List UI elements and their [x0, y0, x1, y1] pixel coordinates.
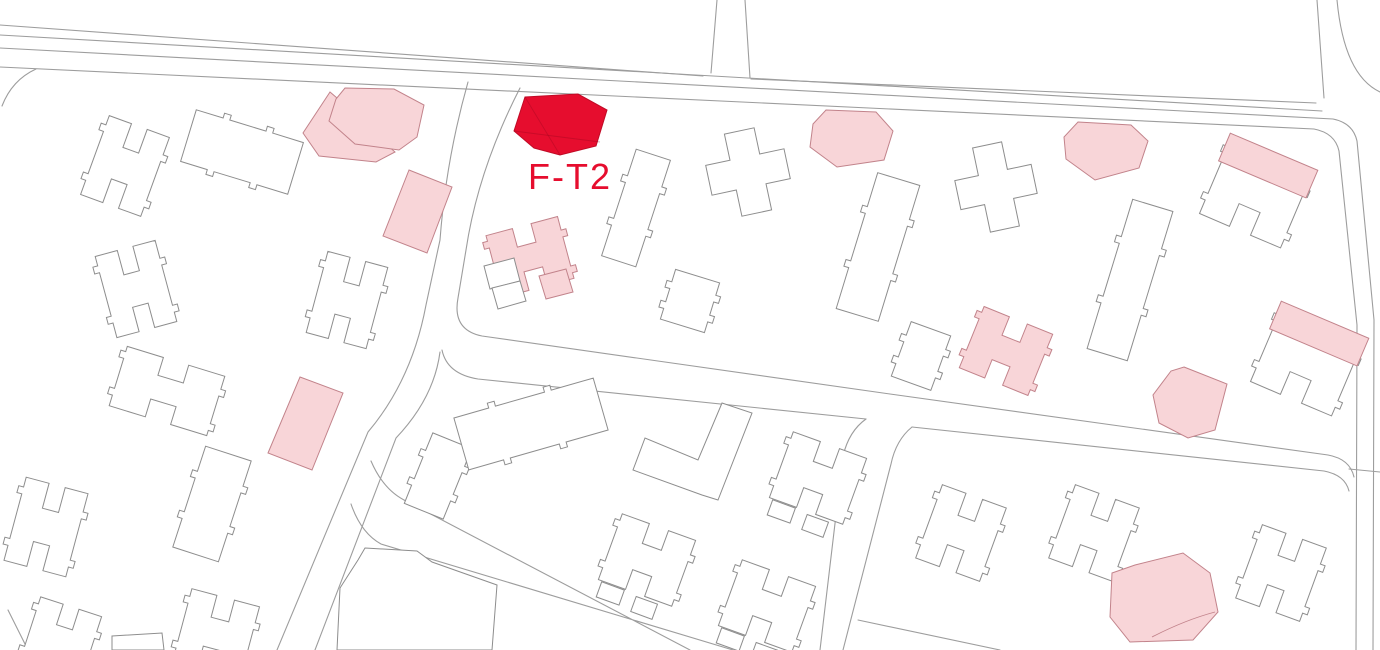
south-branch-road — [820, 419, 912, 650]
buildings-layer — [3, 88, 1369, 650]
building-w17 — [836, 173, 920, 322]
building-p12 — [959, 307, 1053, 396]
building-w23 — [916, 485, 1007, 582]
building-p5 — [810, 110, 893, 167]
building-w1 — [81, 116, 170, 217]
building-w4 — [305, 251, 388, 348]
building-p6 — [1064, 122, 1148, 180]
top-road-edge-1 — [0, 25, 1316, 103]
site-plan-svg — [0, 0, 1380, 650]
west-edge-arc — [2, 69, 36, 106]
building-p7 — [1153, 367, 1227, 438]
top-road-edge-2 — [0, 35, 1322, 111]
building-w8 — [18, 597, 102, 650]
building-w24 — [1049, 485, 1140, 582]
building-w16 — [706, 128, 791, 216]
building-p11 — [268, 377, 343, 470]
building-w18 — [659, 269, 721, 332]
highlighted-parcel-label: F-T2 — [528, 159, 612, 195]
building-w6 — [3, 477, 88, 577]
building-w3 — [93, 240, 179, 337]
building-p8 — [1110, 553, 1218, 642]
building-w7 — [173, 446, 251, 562]
highlighted-building-red-parcel — [514, 94, 607, 155]
building-w9b — [112, 633, 164, 650]
building-w5 — [108, 346, 226, 435]
building-w9a — [171, 589, 260, 650]
building-p2 — [383, 170, 452, 253]
northeast-stub-road — [1317, 0, 1380, 98]
building-w10 — [454, 378, 608, 470]
building-w11 — [633, 403, 752, 500]
site-plan-canvas: F-T2 — [0, 0, 1380, 650]
middle-road-east-extension — [1349, 469, 1380, 472]
building-w25 — [1236, 525, 1327, 622]
building-w19 — [955, 142, 1037, 232]
building-w26 — [891, 322, 951, 391]
southeast-boundary-line — [858, 620, 1000, 650]
building-w2 — [181, 110, 304, 194]
north-stub-road — [711, 0, 750, 78]
middle-road-lower-edge-east — [912, 427, 1349, 491]
building-wbig — [337, 548, 497, 650]
building-w20 — [1087, 199, 1173, 360]
